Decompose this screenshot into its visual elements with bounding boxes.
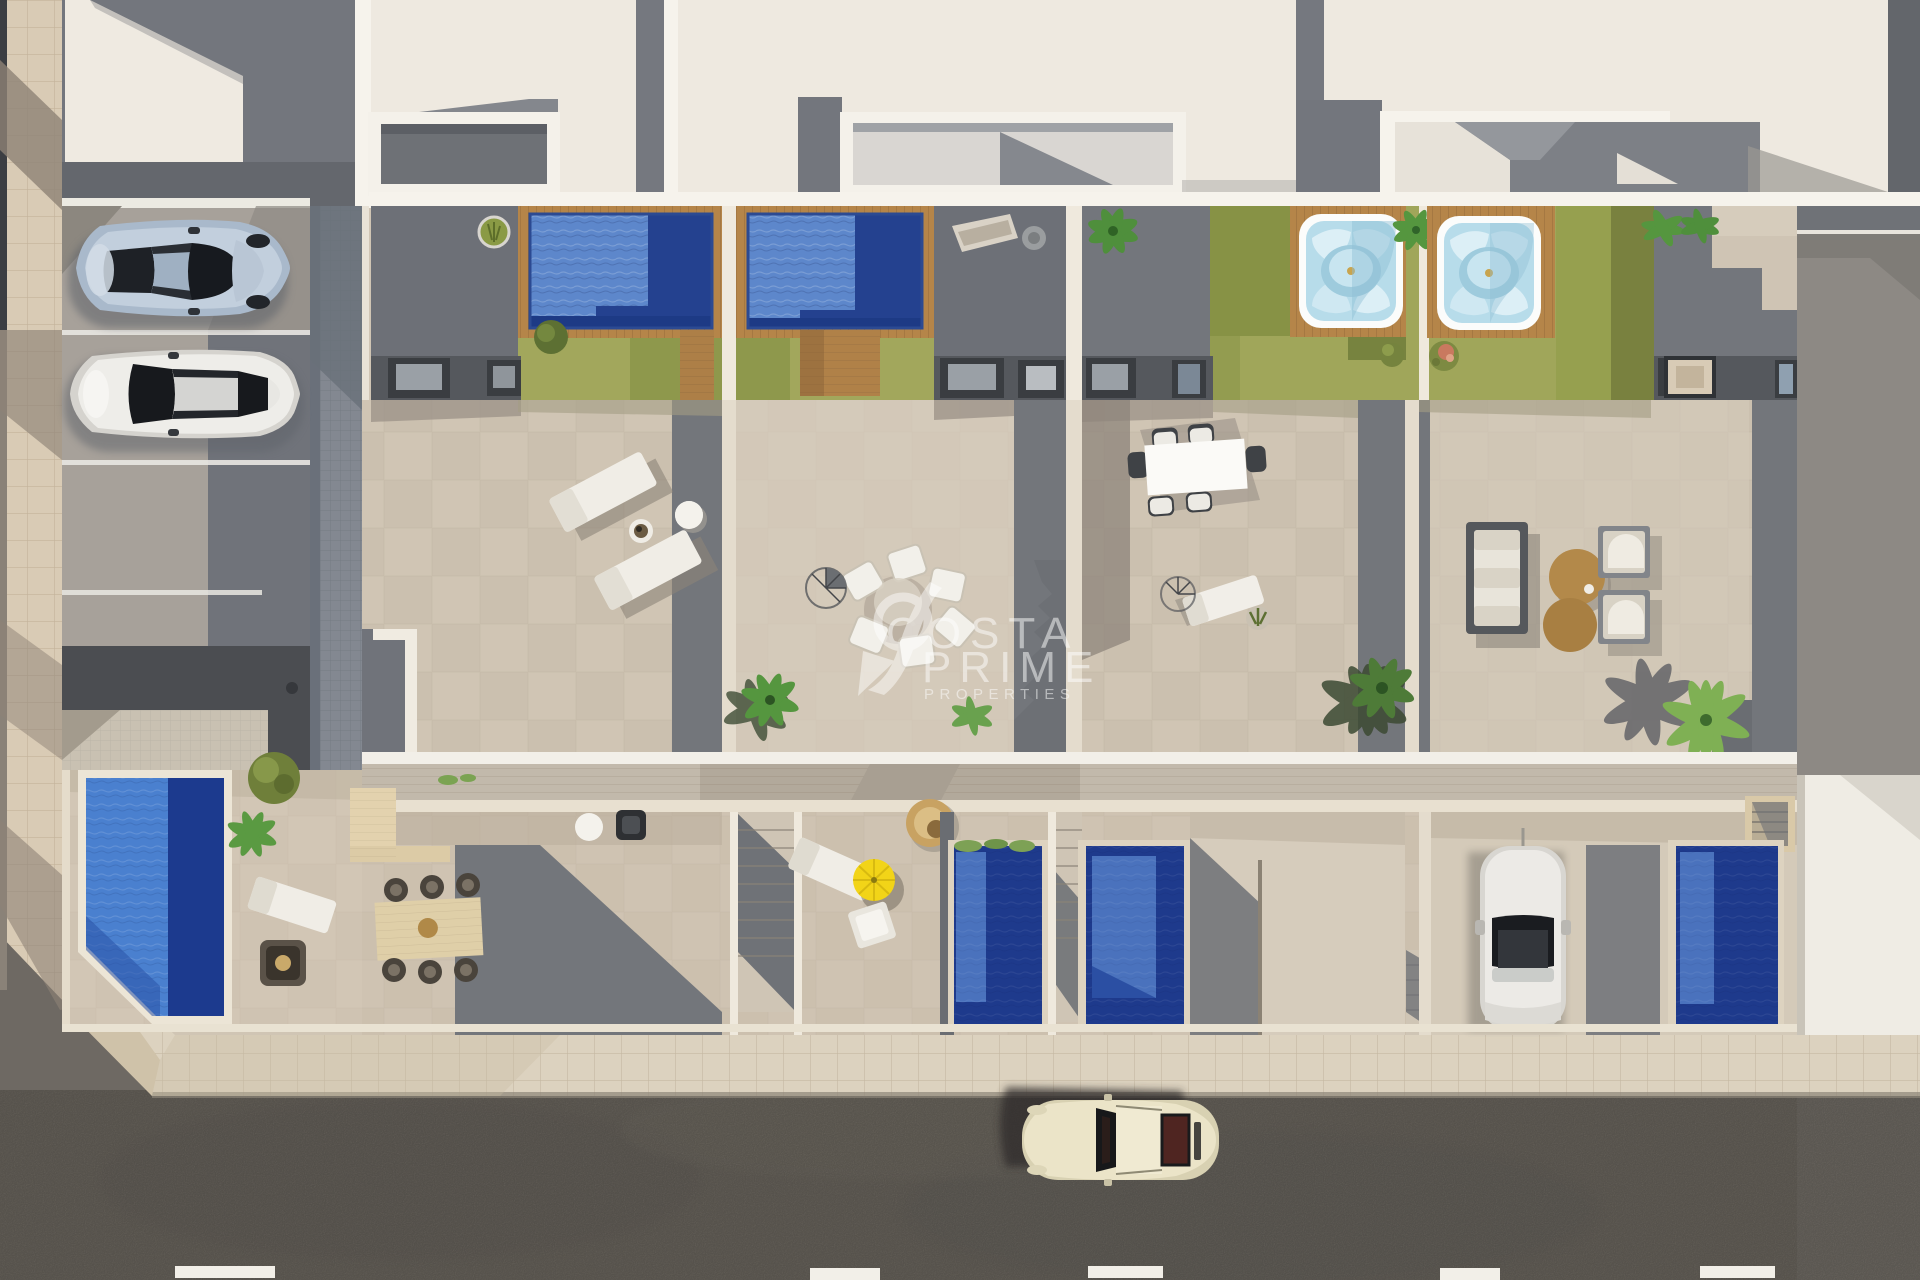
svg-text:PROPERTIES: PROPERTIES bbox=[924, 686, 1075, 703]
svg-text:PRIME: PRIME bbox=[922, 643, 1101, 692]
